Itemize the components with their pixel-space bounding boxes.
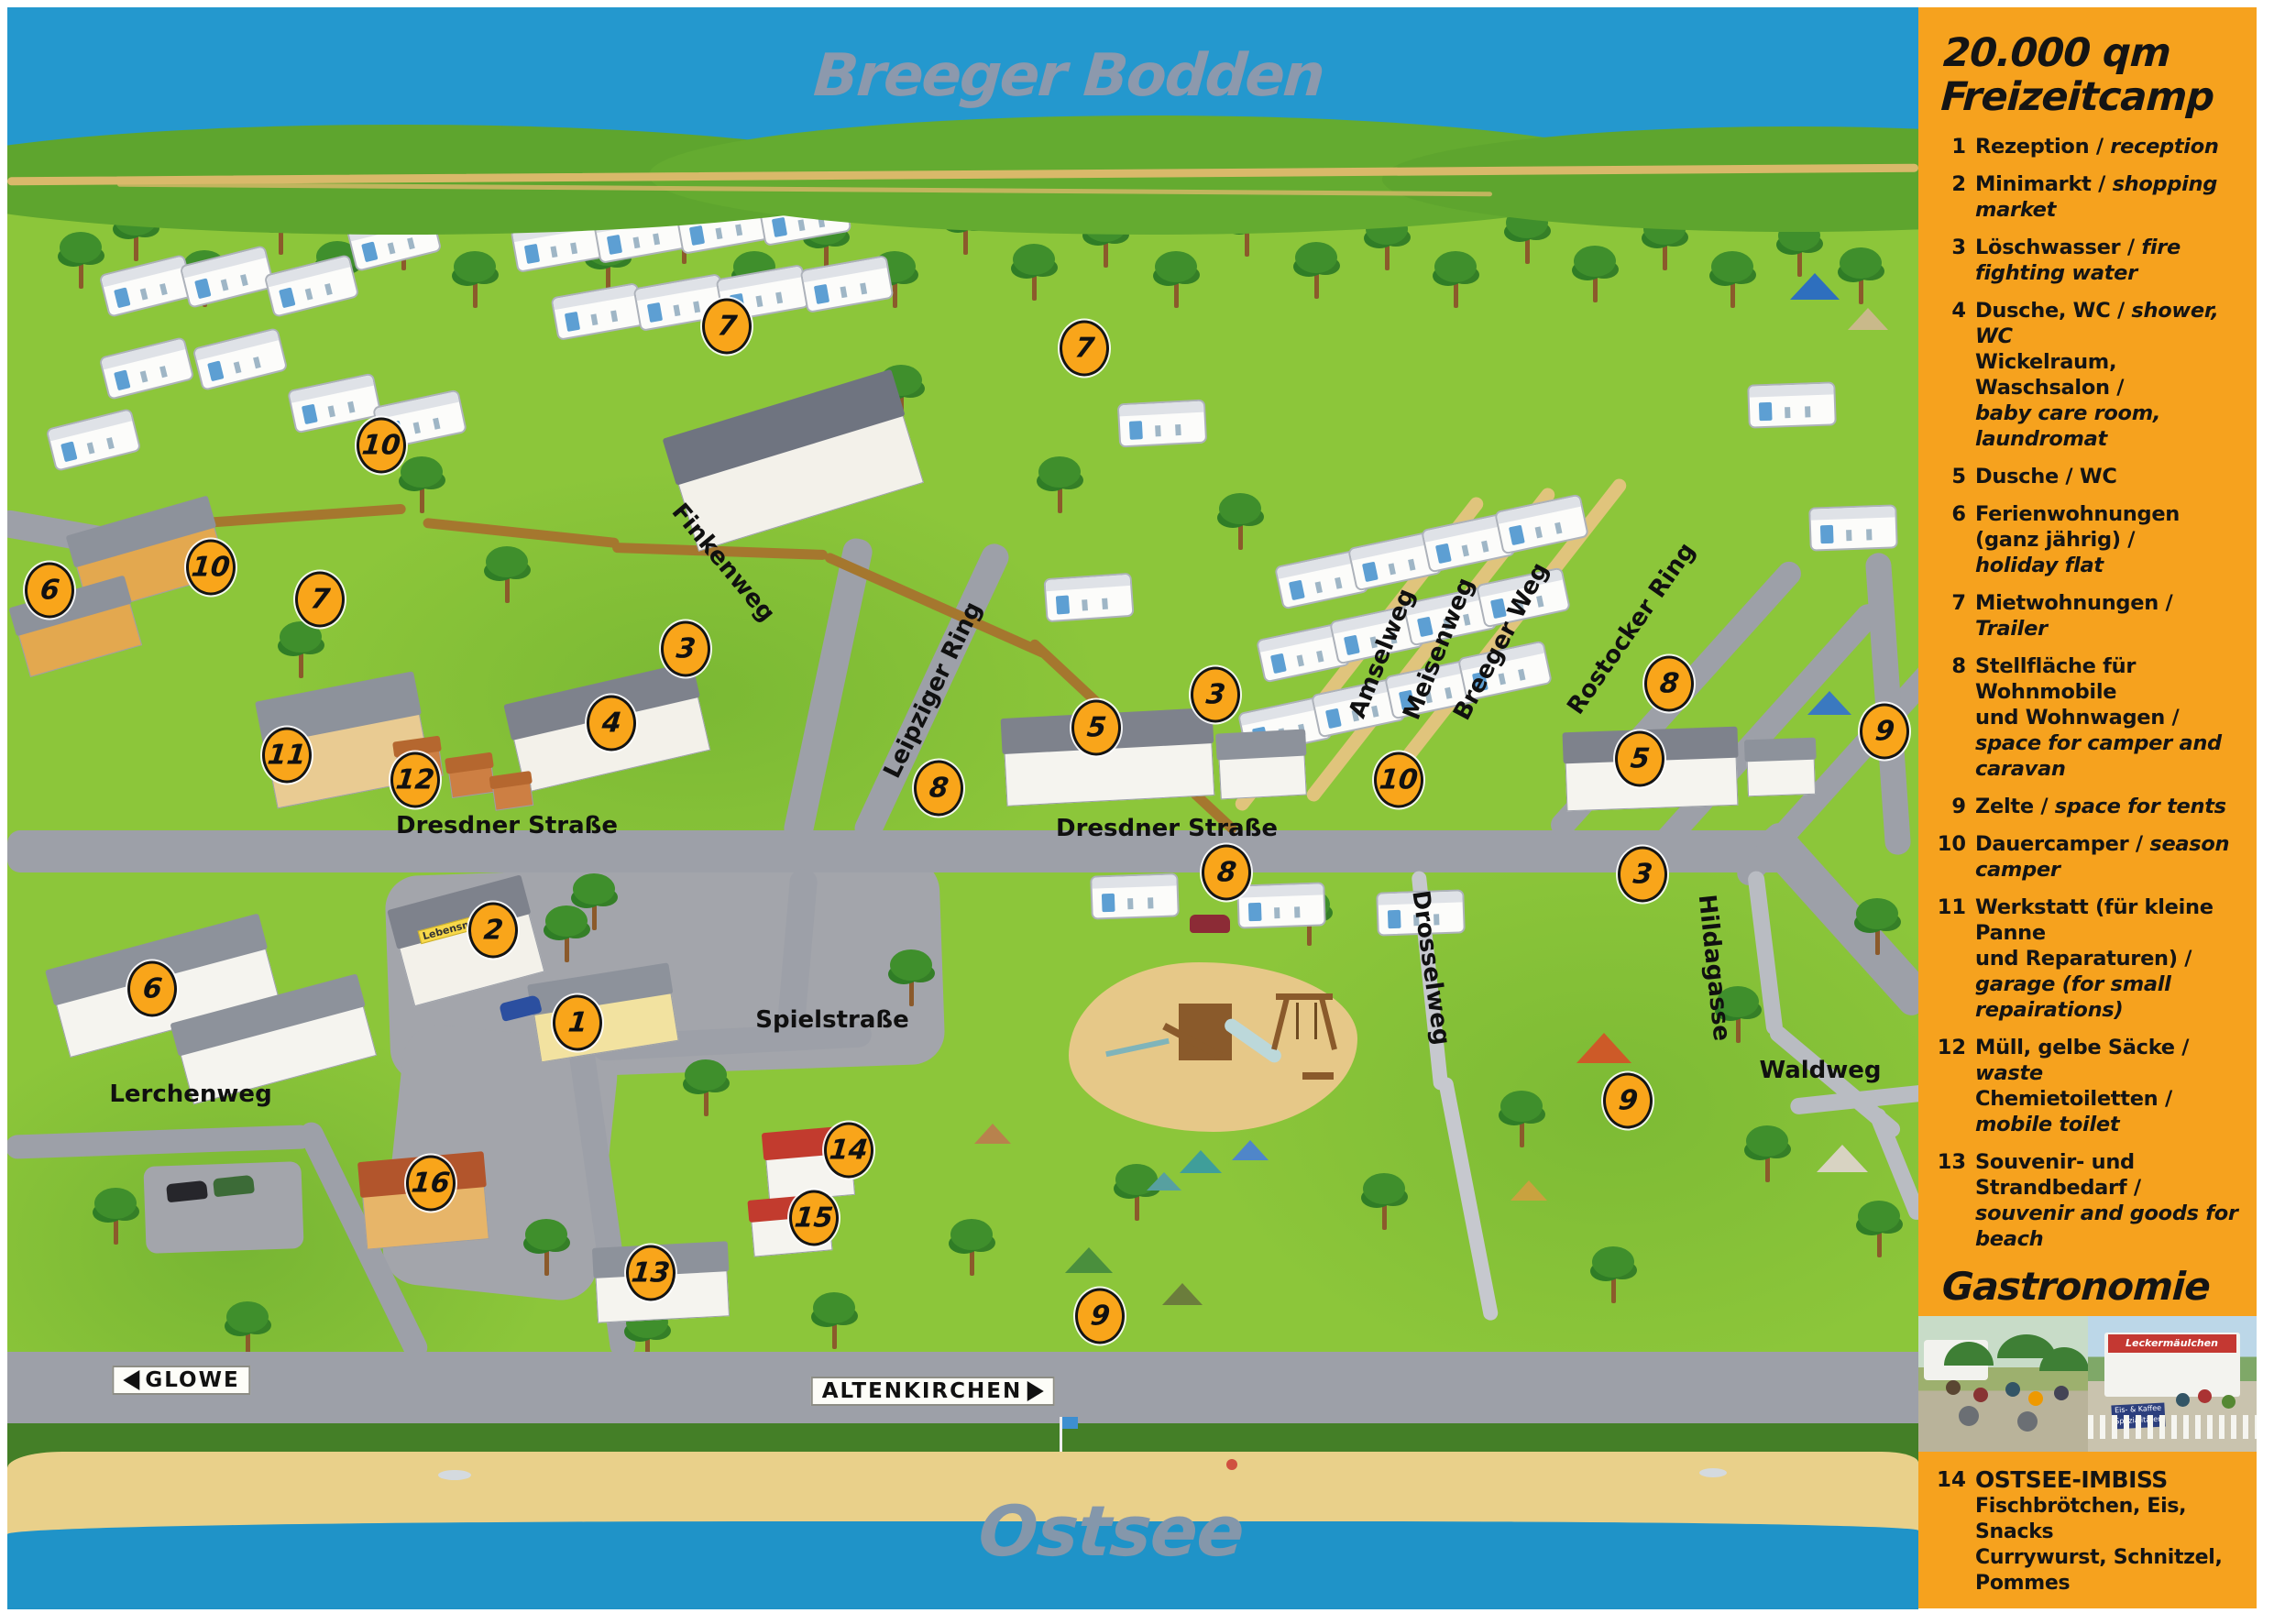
building <box>1746 740 1816 797</box>
legend-item-text: Löschwasser / fire fighting water <box>1975 235 2249 286</box>
legend-item-number: 7 <box>1933 590 1975 642</box>
building <box>446 754 495 798</box>
map-marker-3: 3 <box>661 621 710 677</box>
tree-icon <box>94 1188 137 1246</box>
legend-line: Stellfläche für Wohnmobile <box>1975 653 2249 705</box>
road-segment <box>7 830 1795 872</box>
direction-sign-altenkirchen: ALTENKIRCHEN <box>811 1377 1055 1406</box>
legend-item-number: 12 <box>1933 1035 1975 1137</box>
map-marker-8: 8 <box>1202 845 1251 901</box>
legend-item-12: 12Müll, gelbe Säcke / wasteChemietoilett… <box>1933 1035 2249 1137</box>
tree-icon <box>1840 247 1882 306</box>
legend-item-text: Müll, gelbe Säcke / wasteChemietoiletten… <box>1975 1035 2249 1137</box>
road-segment <box>781 536 873 844</box>
caravan-icon <box>192 327 289 391</box>
caravan-icon <box>551 282 645 341</box>
sign-label: GLOWE <box>145 1368 239 1392</box>
street-label-dresdner-stra-e: Dresdner Straße <box>396 812 618 839</box>
map-marker-8: 8 <box>1644 656 1694 712</box>
caravan-icon <box>264 254 360 318</box>
tent-icon <box>1848 308 1888 330</box>
map-marker-9: 9 <box>1075 1289 1125 1344</box>
legend-item-text: Werkstatt (für kleine Panneund Reparatur… <box>1975 894 2249 1023</box>
map-marker-14: 14 <box>824 1123 873 1179</box>
legend-item-5: 5Dusche / WC <box>1933 464 2249 489</box>
legend-item-text: Stellfläche für Wohnmobileund Wohnwagen … <box>1975 653 2249 782</box>
legend-item-3: 3Löschwasser / fire fighting water <box>1933 235 2249 286</box>
tree-icon <box>1363 1173 1405 1232</box>
map-marker-4: 4 <box>587 696 636 752</box>
legend-line: Chemietoiletten / mobile toilet <box>1975 1086 2249 1137</box>
playground <box>1069 962 1357 1132</box>
map-marker-3: 3 <box>1618 847 1667 903</box>
legend-line: baby care room, laundromat <box>1975 401 2249 452</box>
tent-icon <box>1790 273 1840 300</box>
legend-item-number: 1 <box>1933 134 1975 159</box>
gastro-item-desc: Currywurst, Schnitzel, Pommes <box>1975 1545 2249 1597</box>
tree-icon <box>1013 244 1055 302</box>
gastro-photo-leckermaeulchen: Leckermäulchen Eis- & Kaffee Spezialität… <box>2088 1316 2258 1452</box>
photo-sign: Leckermäulchen <box>2108 1334 2236 1353</box>
boat-icon <box>1699 1468 1727 1477</box>
ostsee-water <box>7 1521 1918 1609</box>
tent-icon <box>1807 691 1851 715</box>
street-label-leipziger-ring: Leipziger Ring <box>878 598 987 783</box>
caravan-icon <box>800 255 895 313</box>
map-marker-1: 1 <box>553 995 602 1051</box>
water-label-breeger-bodden: Breeger Bodden <box>811 42 1329 110</box>
arrow-right-icon <box>1027 1381 1044 1401</box>
legend-item-10: 10Dauercamper / season camper <box>1933 831 2249 883</box>
caravan-icon <box>1236 882 1326 928</box>
legend-sidebar: 20.000 qm Freizeitcamp 1Rezeption / rece… <box>1918 7 2257 1608</box>
tree-icon <box>60 232 102 291</box>
arrow-left-icon <box>123 1370 139 1390</box>
legend-title: 20.000 qm Freizeitcamp <box>1939 31 2257 119</box>
street-label-hildagasse: Hildagasse <box>1693 894 1736 1043</box>
beach-umbrella-icon <box>1226 1459 1237 1470</box>
legend-line: Minimarkt / shopping market <box>1975 171 2249 223</box>
legend-item-text: Mietwohnungen / Trailer <box>1975 590 2249 642</box>
legend-line: Rezeption / reception <box>1975 134 2249 159</box>
legend-line: Dusche / WC <box>1975 464 2249 489</box>
tree-icon <box>486 546 528 605</box>
legend-item-text: Souvenir- und Strandbedarf /souvenir and… <box>1975 1149 2249 1252</box>
facilities-list: 1Rezeption / reception2Minimarkt / shopp… <box>1933 134 2249 1252</box>
legend-line: Wickelraum, Waschsalon / <box>1975 349 2249 401</box>
legend-line: Ferienwohnungen (ganz jährig) / <box>1975 501 2249 553</box>
map-marker-16: 16 <box>406 1156 456 1212</box>
legend-line: Zelte / space for tents <box>1975 794 2249 819</box>
legend-item-text: Ferienwohnungen (ganz jährig) /holiday f… <box>1975 501 2249 578</box>
tent-icon <box>1576 1033 1631 1063</box>
street-label-spielstra-e: Spielstraße <box>755 1006 908 1034</box>
tent-icon <box>1817 1145 1868 1172</box>
map-marker-5: 5 <box>1615 731 1664 787</box>
tent-icon <box>1511 1180 1547 1201</box>
legend-item-11: 11Werkstatt (für kleine Panneund Reparat… <box>1933 894 2249 1023</box>
caravan-icon <box>1090 872 1180 919</box>
boat-icon <box>438 1470 471 1480</box>
legend-item-number: 8 <box>1933 653 1975 782</box>
legend-line: Dauercamper / season camper <box>1975 831 2249 883</box>
legend-line: garage (for small repairations) <box>1975 971 2249 1023</box>
map-marker-12: 12 <box>390 752 440 808</box>
legend-item-number: 3 <box>1933 235 1975 286</box>
map-marker-10: 10 <box>1374 752 1423 808</box>
road-segment <box>1437 1076 1499 1322</box>
caravan-icon <box>1043 573 1134 623</box>
tent-icon <box>1147 1172 1181 1191</box>
gastro-item-number: 14 <box>1929 1466 1975 1597</box>
legend-item-text: Minimarkt / shopping market <box>1975 171 2249 223</box>
map-marker-10: 10 <box>357 418 406 474</box>
legend-line: space for camper and caravan <box>1975 730 2249 782</box>
direction-sign-glowe: GLOWE <box>112 1366 250 1395</box>
caravan-icon <box>99 336 195 401</box>
legend-item-number: 9 <box>1933 794 1975 819</box>
legend-item-text: Zelte / space for tents <box>1975 794 2249 819</box>
caravan-icon <box>99 254 195 318</box>
tree-icon <box>1038 456 1081 515</box>
legend-line: Werkstatt (für kleine Panne <box>1975 894 2249 946</box>
building <box>491 773 534 810</box>
sign-label: ALTENKIRCHEN <box>822 1379 1022 1403</box>
legend-item-number: 10 <box>1933 831 1975 883</box>
map-marker-11: 11 <box>262 728 312 784</box>
legend-line: Mietwohnungen / Trailer <box>1975 590 2249 642</box>
illustrated-map: Breeger Bodden Ostsee FinkenwegLeipziger… <box>7 7 1918 1609</box>
tree-icon <box>1219 493 1261 552</box>
tree-icon <box>1155 251 1197 310</box>
tent-icon <box>1065 1247 1113 1273</box>
map-marker-3: 3 <box>1191 667 1240 723</box>
legend-item-text: Dauercamper / season camper <box>1975 831 2249 883</box>
legend-item-1: 1Rezeption / reception <box>1933 134 2249 159</box>
legend-item-number: 5 <box>1933 464 1975 489</box>
tree-icon <box>1500 1091 1543 1149</box>
tree-icon <box>1295 242 1337 301</box>
map-marker-10: 10 <box>186 540 236 596</box>
legend-item-text: Dusche / WC <box>1975 464 2249 489</box>
map-marker-15: 15 <box>789 1191 839 1246</box>
legend-item-text: Rezeption / reception <box>1975 134 2249 159</box>
gastro-item-desc: Fischbrötchen, Eis, Snacks <box>1975 1494 2249 1545</box>
map-marker-7: 7 <box>702 299 752 355</box>
tree-icon <box>1746 1125 1788 1184</box>
legend-line: und Wohnwagen / <box>1975 705 2249 730</box>
legend-item-2: 2Minimarkt / shopping market <box>1933 171 2249 223</box>
legend-item-number: 11 <box>1933 894 1975 1023</box>
tree-icon <box>280 621 322 680</box>
beach-flag <box>1060 1417 1062 1452</box>
map-marker-8: 8 <box>914 761 963 817</box>
legend-item-number: 2 <box>1933 171 1975 223</box>
legend-line: Müll, gelbe Säcke / waste <box>1975 1035 2249 1086</box>
legend-line: Löschwasser / fire fighting water <box>1975 235 2249 286</box>
road-segment <box>1747 871 1784 1037</box>
campsite-map-poster: Breeger Bodden Ostsee FinkenwegLeipziger… <box>0 0 2274 1624</box>
car-icon <box>1190 915 1230 933</box>
tree-icon <box>950 1219 993 1278</box>
tree-icon <box>454 251 496 310</box>
tent-icon <box>1162 1283 1203 1305</box>
map-marker-5: 5 <box>1071 700 1121 756</box>
legend-item-number: 13 <box>1933 1149 1975 1252</box>
road-segment <box>7 1125 313 1159</box>
tent-icon <box>1180 1150 1222 1173</box>
legend-item-4: 4Dusche, WC / shower, WCWickelraum, Wasc… <box>1933 298 2249 452</box>
caravan-icon <box>180 245 276 309</box>
tent-icon <box>1232 1140 1269 1160</box>
tree-icon <box>1858 1201 1900 1259</box>
map-marker-6: 6 <box>127 961 177 1017</box>
map-marker-2: 2 <box>468 903 518 959</box>
water-label-ostsee: Ostsee <box>976 1490 1247 1572</box>
map-marker-7: 7 <box>295 572 345 628</box>
tree-icon <box>1592 1246 1634 1305</box>
legend-item-text: Dusche, WC / shower, WCWickelraum, Wasch… <box>1975 298 2249 452</box>
legend-item-13: 13Souvenir- und Strandbedarf /souvenir a… <box>1933 1149 2249 1252</box>
legend-item-number: 4 <box>1933 298 1975 452</box>
caravan-icon <box>1808 504 1898 551</box>
gastronomie-photos: Leckermäulchen Eis- & Kaffee Spezialität… <box>1918 1316 2257 1452</box>
caravan-icon <box>1747 381 1837 428</box>
gastro-photo-imbiss <box>1918 1316 2088 1452</box>
caravan-icon <box>1117 400 1207 448</box>
legend-item-6: 6Ferienwohnungen (ganz jährig) /holiday … <box>1933 501 2249 578</box>
legend-line: Souvenir- und Strandbedarf / <box>1975 1149 2249 1201</box>
legend-item-9: 9Zelte / space for tents <box>1933 794 2249 819</box>
building <box>1217 731 1307 800</box>
legend-item-7: 7Mietwohnungen / Trailer <box>1933 590 2249 642</box>
tent-icon <box>974 1124 1011 1144</box>
map-marker-9: 9 <box>1603 1073 1653 1129</box>
road-segment <box>423 517 620 547</box>
street-label-dresdner-stra-e: Dresdner Straße <box>1056 815 1278 842</box>
gastronomie-heading: Gastronomie <box>1941 1264 2257 1309</box>
tree-icon <box>1434 251 1477 310</box>
gastro-item-name: OSTSEE-IMBISS <box>1975 1466 2249 1494</box>
legend-item-number: 6 <box>1933 501 1975 578</box>
legend-line: und Reparaturen) / <box>1975 946 2249 971</box>
legend-item-8: 8Stellfläche für Wohnmobileund Wohnwagen… <box>1933 653 2249 782</box>
gastro-item-14: 14OSTSEE-IMBISSFischbrötchen, Eis, Snack… <box>1929 1466 2249 1597</box>
gastro-item-text: OSTSEE-IMBISSFischbrötchen, Eis, SnacksC… <box>1975 1466 2249 1597</box>
yard-area <box>143 1161 303 1254</box>
street-label-waldweg: Waldweg <box>1759 1057 1881 1084</box>
map-marker-6: 6 <box>25 563 74 619</box>
tree-icon <box>1574 246 1616 304</box>
tree-icon <box>1711 251 1753 310</box>
map-marker-7: 7 <box>1060 321 1109 377</box>
map-marker-9: 9 <box>1860 704 1909 760</box>
gastronomie-list: 14OSTSEE-IMBISSFischbrötchen, Eis, Snack… <box>1929 1466 2249 1608</box>
map-marker-13: 13 <box>626 1245 676 1301</box>
tree-icon <box>813 1292 855 1351</box>
legend-line: souvenir and goods for beach <box>1975 1201 2249 1252</box>
street-label-lerchenweg: Lerchenweg <box>109 1081 271 1108</box>
legend-line: holiday flat <box>1975 553 2249 578</box>
legend-line: Dusche, WC / shower, WC <box>1975 298 2249 349</box>
caravan-icon <box>46 408 142 472</box>
tree-icon <box>401 456 443 515</box>
